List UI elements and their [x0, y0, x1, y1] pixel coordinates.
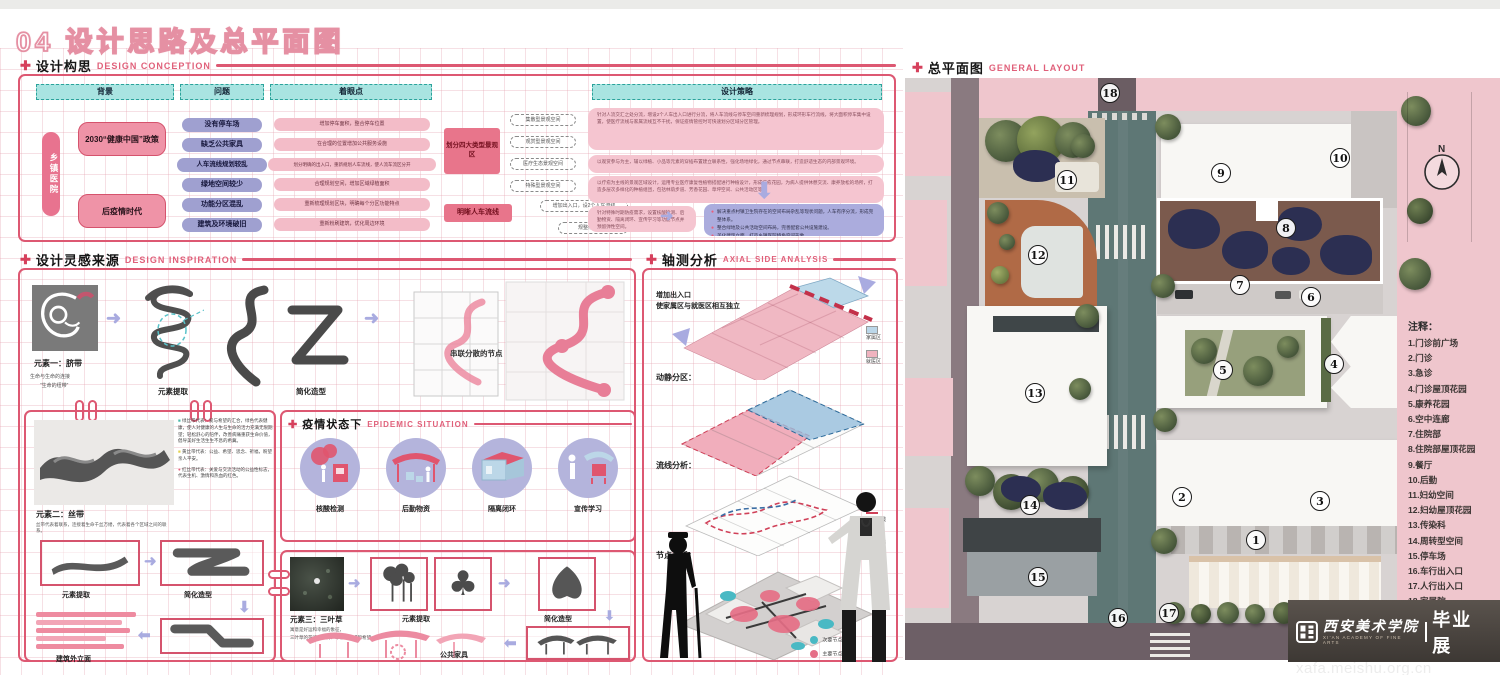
legend-item: 4.门诊屋顶花园	[1408, 382, 1498, 397]
epidemic-label: 隔离闭环	[467, 504, 537, 514]
elderly-silhouette	[642, 530, 716, 664]
car	[1275, 291, 1291, 299]
footer-logo: 西安美术学院 XI'AN ACADEMY OF FINE ARTS 毕业展 xa…	[1288, 600, 1500, 662]
element2-box: ■ 绿丝带代表：爱与希望的汇合，绿色代表健康，使人对健康的人生与生命的活力充满无…	[24, 410, 276, 662]
inspiration-title-en: DESIGN INSPIRATION	[125, 255, 237, 265]
problem-pill: 建筑及环境破旧	[182, 218, 262, 232]
facade-bars	[36, 612, 136, 652]
family-chip	[866, 326, 878, 334]
service-yard-10	[1351, 111, 1397, 208]
legend-item: 8.住院部屋顶花园	[1408, 442, 1498, 457]
top-bar	[0, 0, 1500, 9]
element2-step3: 建筑外立面	[56, 654, 91, 664]
school-name: 西安美术学院	[1323, 620, 1420, 634]
legend-item: 3.急诊	[1408, 366, 1498, 381]
focus-pill: 合理规划空间，增加区域绿植面积	[274, 178, 430, 191]
strategy-group2: 明晰人车流线	[444, 204, 512, 222]
summary-point: 整合绿地及公共活动空间布局，完善配套公共设施建设。	[717, 224, 832, 233]
cross-icon: ✚	[288, 418, 297, 431]
epidemic-icon-education	[558, 438, 618, 498]
legend-item: 5.康养花园	[1408, 397, 1498, 412]
divider	[1425, 622, 1427, 642]
epidemic-label: 后勤物资	[381, 504, 451, 514]
legend-family: 家属区	[866, 326, 881, 341]
plan-marker: 14	[1020, 495, 1040, 515]
ribbon-extract-box	[40, 540, 140, 586]
epidemic-icon-testing	[300, 438, 360, 498]
axial-section: 增加出入口 使家属区与就医区相互独立 家属区 就医区 动静分区： 流线分析： 人…	[642, 268, 898, 662]
element3-box: 元素三：三叶草 寓意是好运和幸福的象征， 三叶草的花语是爱情、幸福、祈求和希望。…	[280, 550, 636, 662]
conception-title-en: DESIGN CONCEPTION	[97, 61, 211, 71]
site-plan: 1 2 3 4 5 6 7 8 9 10 11 12 13 14 15 16 1…	[905, 78, 1397, 660]
element1-caption: “生命的纽带”	[40, 382, 68, 389]
strategy-paragraph: 针对人流交汇之处分流，增设2个人车出入口进行分流，将人车流线与停车空间重新梳理规…	[588, 108, 884, 150]
coil-shape	[132, 284, 204, 384]
element1-step1: 元素提取	[158, 386, 188, 397]
clover-icon: ♣	[448, 564, 478, 604]
plaza-1	[1157, 526, 1397, 554]
ribbon-green-text: ■ 绿丝带代表：爱与希望的汇合，绿色代表健康，使人对健康的人生与生命的活力充满无…	[178, 418, 274, 445]
legend-item: 9.餐厅	[1408, 458, 1498, 473]
scale-line	[1407, 92, 1408, 242]
plan-marker: 2	[1172, 487, 1192, 507]
plan-marker: 10	[1330, 148, 1350, 168]
cross-icon: ✚	[20, 58, 31, 74]
roof-garden-8	[1157, 198, 1383, 284]
epidemic-icon-supplies	[386, 438, 446, 498]
column-background: 背景	[36, 84, 174, 100]
landscape-type-pill: 集散型景观空间	[510, 114, 576, 126]
building-5	[1157, 316, 1327, 408]
context-building	[905, 508, 949, 608]
focus-pill: 重新粉刷建筑，优化周边环境	[274, 218, 430, 231]
axial-plan-zoning	[672, 382, 872, 476]
plan-marker: 8	[1276, 218, 1296, 238]
element3-step3: 公共家具	[440, 650, 468, 660]
arrow-right-icon: ➜	[106, 308, 121, 329]
epidemic-box: ✚ 疫情状态下 EPIDEMIC SITUATION 核酸检测 后勤物资 隔离闭…	[280, 410, 636, 542]
plan-marker: 1	[1246, 530, 1266, 550]
axial-title-en: AXIAL SIDE ANALYSIS	[723, 255, 828, 264]
fetus-image	[32, 285, 98, 351]
plan-marker: 9	[1211, 163, 1231, 183]
strategy-summary-box: ●解决重点村镇卫生院存在的空间布局杂乱等现状问题，人车有序分流，形成完整体系。 …	[704, 204, 884, 236]
inspiration-section: 元素一：脐带 生命与生命的连接 “生命的纽带” ➜ 元素提取 简化造型 ➜ 串联…	[18, 268, 636, 662]
zebra-crossing	[1096, 225, 1148, 259]
parking-roof	[963, 518, 1101, 552]
layout-header: ✚ 总平面图 GENERAL LAYOUT	[912, 58, 1212, 77]
plan-marker: 3	[1310, 491, 1330, 511]
plan-marker: 5	[1213, 360, 1233, 380]
school-subtitle: XI'AN ACADEMY OF FINE ARTS	[1323, 635, 1420, 645]
arrow-left-icon: ⬅	[138, 626, 151, 644]
cross-icon: ✚	[20, 252, 31, 268]
context-building	[905, 92, 951, 176]
legend-item: 11.妇幼空间	[1408, 488, 1498, 503]
problem-pill: 没有停车场	[182, 118, 262, 132]
plan-legend: 注释： 1.门诊前广场 2.门诊 3.急诊 4.门诊屋顶花园 5.康养花园 6.…	[1408, 318, 1498, 610]
background-item: 后疫情时代	[78, 194, 166, 228]
arrow-right-icon: ➜	[364, 308, 379, 329]
plan-marker: 4	[1324, 354, 1344, 374]
page-title: 04 设计思路及总平面图	[16, 20, 345, 59]
landscape-type-pill: 观赏型景观空间	[510, 136, 576, 148]
divider	[216, 64, 896, 67]
side-label: 乡镇医院	[42, 132, 60, 216]
legend-item: 10.后勤	[1408, 473, 1498, 488]
legend-item: 7.住院部	[1408, 427, 1498, 442]
legend-item: 14.周转型空间	[1408, 534, 1498, 549]
bullet-icon: ●	[711, 232, 714, 236]
plan-marker: 16	[1108, 608, 1128, 628]
divider	[242, 258, 632, 261]
element2-caption: 丝带代表着联系，连接着生命千丝万缕，代表着各个区域之间的联系。	[36, 522, 170, 535]
legend-item: 13.传染科	[1408, 518, 1498, 533]
strategy-paragraph: 以观赏参与为主，辅以绿植、小品等元素的穿插布置建立联系性，强化场地绿化，通过节点…	[588, 155, 884, 173]
ribbon-red-text: ● 红丝带代表：关爱与交流活动的公益性标志，代表生机、激情和热血的红色。	[178, 467, 274, 481]
problem-pill: 功能分区混乱	[182, 198, 262, 212]
pavilion-blob	[1013, 150, 1061, 182]
arrow-down-icon: ⬇	[604, 608, 615, 624]
ribbon-image	[34, 420, 174, 505]
school-name-block: 西安美术学院 XI'AN ACADEMY OF FINE ARTS	[1323, 620, 1420, 645]
layout-title-zh: 总平面图	[928, 58, 984, 77]
legend-item: 17.人行出入口	[1408, 579, 1498, 594]
primary-node-chip	[810, 650, 818, 658]
plan-marker: 17	[1159, 603, 1179, 623]
exhibition-label: 毕业展	[1432, 606, 1492, 658]
plan-marker: 6	[1301, 287, 1321, 307]
arrow-right-icon: ➜	[348, 574, 361, 592]
fetus-icon	[32, 285, 98, 351]
bullet-icon: ●	[711, 224, 714, 233]
zebra-crossing	[1150, 629, 1190, 657]
conception-title-zh: 设计构思	[36, 56, 92, 75]
summary-point: 美化建筑立面，打造乡镇医院特色空间形象。	[717, 232, 809, 236]
ribbon-simplified-box	[160, 540, 264, 586]
epidemic-icon-isolation	[472, 438, 532, 498]
axial-plan-entry	[672, 276, 876, 380]
ribbon-step-shape	[162, 620, 262, 652]
element1-name: 元素一：脐带	[34, 358, 82, 369]
plan-marker: 7	[1230, 275, 1250, 295]
legend-item: 12.妇幼屋顶花园	[1408, 503, 1498, 518]
context-building	[905, 378, 953, 456]
epidemic-label: 核酸检测	[295, 504, 365, 514]
building-9	[1161, 124, 1351, 208]
legend-item: 16.车行出入口	[1408, 564, 1498, 579]
conception-section: 背景 问题 着眼点 设计策略 乡镇医院 2030“健康中国”政策 后疫情时代 没…	[18, 74, 896, 242]
z-shape	[278, 298, 350, 378]
layout-title-en: GENERAL LAYOUT	[989, 63, 1086, 73]
column-focus: 着眼点	[270, 84, 432, 100]
clover-box: ♣	[434, 557, 492, 611]
background-item: 2030“健康中国”政策	[78, 122, 166, 156]
element2-step2: 简化造型	[184, 590, 212, 600]
ribbon-step-box	[160, 618, 264, 654]
medical-chip	[866, 350, 878, 358]
element2-step1: 元素提取	[62, 590, 90, 600]
plan-marker: 15	[1028, 567, 1048, 587]
pavilion-blob	[1043, 482, 1087, 510]
element3-step2: 简化造型	[544, 614, 572, 624]
plan-marker: 18	[1100, 83, 1120, 103]
epidemic-title-en: EPIDEMIC SITUATION	[367, 420, 468, 429]
epidemic-title-zh: 疫情状态下	[302, 416, 362, 432]
plan-thumbnails	[412, 278, 630, 404]
divider	[474, 423, 632, 425]
bullet-icon: ●	[711, 208, 714, 224]
conception-header: ✚ 设计构思 DESIGN CONCEPTION	[20, 56, 896, 75]
legend-medical: 就医区	[866, 350, 881, 365]
plan-marker: 13	[1025, 383, 1045, 403]
legend-item: 2.门诊	[1408, 351, 1498, 366]
courtyard	[1185, 330, 1305, 396]
curve-shape	[212, 284, 276, 388]
strategy-paragraph: 以疗愈为主线的景观区域设计，运用专业医疗康复性植物搭配进行种植设计，形成疗愈花园…	[588, 176, 884, 203]
cross-icon: ✚	[646, 252, 657, 268]
ribbon-meanings: ■ 绿丝带代表：爱与希望的汇合，绿色代表健康，使人对健康的人生与生命的活力充满无…	[178, 418, 274, 480]
summary-point: 解决重点村镇卫生院存在的空间布局杂乱等现状问题，人车有序分流，形成完整体系。	[717, 208, 877, 224]
clover-photo	[290, 557, 344, 611]
canopy-box	[526, 626, 630, 660]
building-2-3	[1157, 440, 1397, 526]
north-compass-icon: N	[1422, 142, 1462, 194]
tree-cluster-box	[370, 557, 428, 611]
ribbon-extract-shape	[42, 542, 138, 584]
context-building	[963, 78, 1101, 118]
pink-canopies	[298, 622, 498, 662]
strategy-group1: 划分四大类型景观区	[444, 128, 500, 174]
axial-title-zh: 轴测分析	[662, 250, 718, 269]
legend-item: 15.停车场	[1408, 549, 1498, 564]
scale-line	[1471, 92, 1472, 242]
secondary-node-chip	[810, 636, 818, 644]
strategy-paragraph: 针对特殊时期防疫需求，设置核酸检测、后勤物资、隔离闭环、宣传学习等功能节点并预留…	[588, 206, 696, 232]
car	[1175, 290, 1193, 299]
inspiration-header: ✚ 设计灵感来源 DESIGN INSPIRATION	[20, 250, 632, 269]
column-strategy: 设计策略	[592, 84, 882, 100]
focus-pill: 划分明确的出入口，重新规划人车流线，使人流车流区分开	[268, 158, 436, 171]
footer-url: xafa.meishu.org.cn	[1296, 660, 1492, 675]
blob-box	[538, 557, 596, 611]
legend-item: 1.门诊前广场	[1408, 336, 1498, 351]
ribbon-yellow-text: ■ 黄丝带代表：公益、希望、思念、祈福，盼望亲人平安。	[178, 449, 274, 463]
arrow-down-icon: ⬇	[755, 178, 773, 204]
element1-caption: 生命与生命的连接	[30, 373, 70, 380]
plaza-7	[1157, 284, 1383, 314]
school-seal-icon	[1296, 621, 1318, 643]
element2-name: 元素二：丝带	[36, 509, 84, 520]
focus-pill: 在合理的位置增加公共服务设施	[274, 138, 430, 151]
doctor-silhouette	[826, 490, 902, 664]
arrow-right-icon: ➜	[660, 206, 673, 226]
focus-pill: 重新梳理规划区块，明确每个分区功能特点	[274, 198, 430, 211]
element1-step3: 串联分散的节点	[450, 348, 503, 359]
epidemic-label: 宣传学习	[553, 504, 623, 514]
problem-pill: 人车流线规划较乱	[177, 158, 267, 172]
axial-header: ✚ 轴测分析 AXIAL SIDE ANALYSIS	[646, 250, 896, 269]
arrow-right-icon: ➜	[144, 552, 157, 570]
problem-pill: 绿地空间较少	[182, 178, 262, 192]
problem-pill: 缺乏公共家具	[182, 138, 262, 152]
plan-marker: 12	[1028, 245, 1048, 265]
arrow-right-icon: ➜	[498, 574, 511, 592]
legend-title: 注释：	[1408, 318, 1498, 333]
svg-text:N: N	[1438, 144, 1445, 155]
focus-pill: 增加停车面积，整合停车位置	[274, 118, 430, 131]
epidemic-header: ✚ 疫情状态下 EPIDEMIC SITUATION	[288, 416, 632, 432]
context-building	[1136, 78, 1397, 111]
column-problem: 问题	[180, 84, 264, 100]
element1-step2: 简化造型	[296, 386, 326, 397]
arrow-down-icon: ⬇	[238, 598, 251, 616]
inspiration-title-zh: 设计灵感来源	[36, 250, 120, 269]
divider	[833, 258, 896, 261]
arrow-left-icon: ⬅	[504, 634, 517, 652]
landscape-type-pill: 医疗生态景观空间	[510, 158, 576, 170]
context-building	[905, 200, 947, 286]
ribbon-z-shape	[162, 542, 262, 584]
cross-icon: ✚	[912, 60, 923, 76]
plan-marker: 11	[1057, 170, 1077, 190]
legend-item: 6.空中连廊	[1408, 412, 1498, 427]
landscape-type-pill: 特殊型景观空间	[510, 180, 576, 192]
ribbon-3d-shape	[34, 420, 174, 505]
